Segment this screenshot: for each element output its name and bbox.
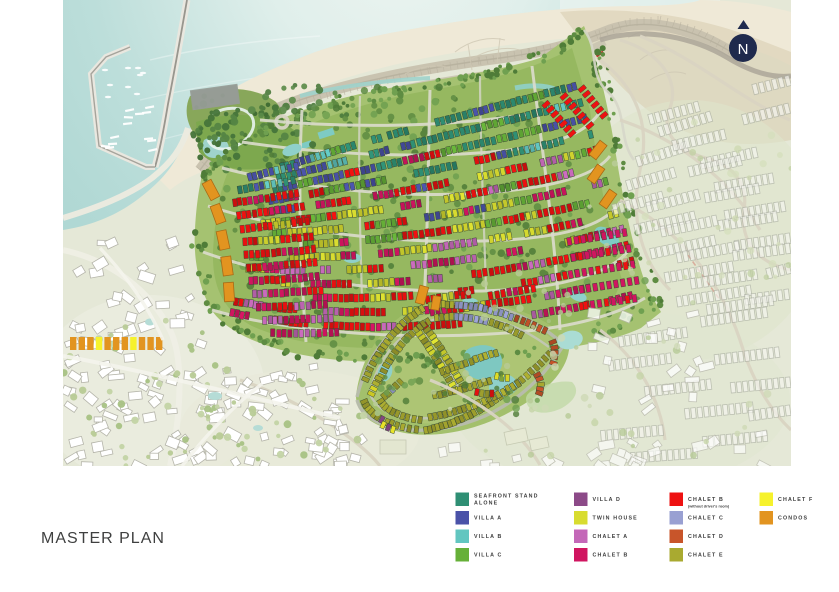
svg-text:ALONE: ALONE [474,500,498,506]
svg-text:MASTER PLAN: MASTER PLAN [41,530,165,547]
svg-text:CHALET E: CHALET E [688,553,724,559]
svg-text:CHALET C: CHALET C [688,516,724,522]
svg-text:(without driver's room): (without driver's room) [688,504,730,508]
svg-text:CONDOS: CONDOS [778,516,808,522]
svg-text:TWIN HOUSE: TWIN HOUSE [593,516,638,522]
svg-text:N: N [738,41,749,58]
svg-text:VILLA A: VILLA A [474,516,502,522]
svg-text:VILLA D: VILLA D [593,497,621,503]
svg-text:VILLA C: VILLA C [474,553,502,559]
svg-text:VILLA B: VILLA B [474,534,502,540]
svg-text:CHALET B: CHALET B [593,553,629,559]
svg-text:SEAFRONT STAND: SEAFRONT STAND [474,494,539,500]
svg-text:CHALET B: CHALET B [688,497,724,503]
svg-text:CHALET F: CHALET F [778,497,813,503]
svg-text:CHALET D: CHALET D [688,534,724,540]
svg-text:CHALET A: CHALET A [593,534,629,540]
